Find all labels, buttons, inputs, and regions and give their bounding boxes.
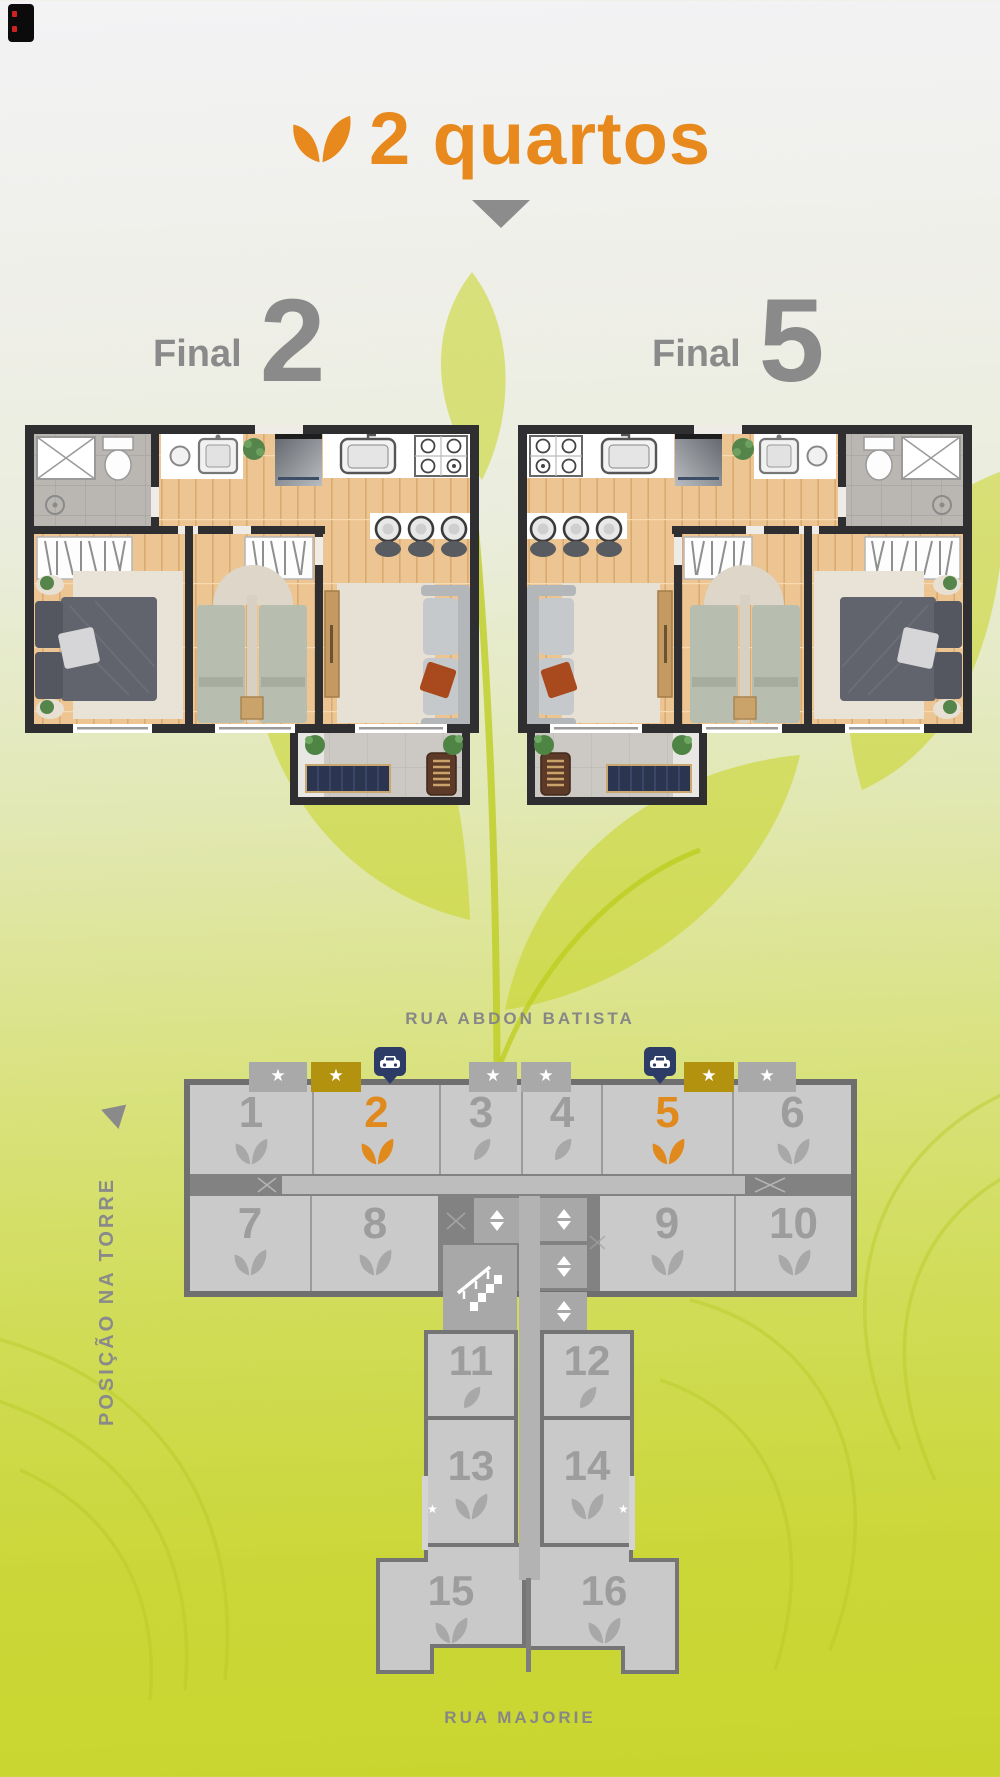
tower-side-label: POSIÇÃO NA TORRE (96, 1136, 130, 1426)
star-tab-6: ★ (738, 1062, 796, 1092)
star-tab-3: ★ (469, 1062, 517, 1092)
street-label-top: RUA ABDON BATISTA (20, 1009, 1000, 1029)
tower-unit-3: 3 (441, 1085, 521, 1174)
unit-number: 8 (363, 1202, 387, 1246)
star-tab-4: ★ (521, 1062, 571, 1092)
leaf-icon (551, 1137, 573, 1162)
tower-unit-5-highlighted: 5 (603, 1085, 732, 1174)
corridor-bar (282, 1176, 745, 1194)
star-tab-2-highlight: ★ (311, 1062, 361, 1092)
tower-unit-13: 13 (424, 1416, 518, 1549)
x-mark-icon (751, 1176, 789, 1194)
leaf-icon (433, 1616, 469, 1645)
unit-number: 12 (564, 1340, 611, 1382)
unit-number: 2 (364, 1091, 388, 1135)
leaf-icon (775, 1137, 811, 1166)
star-icon: ★ (427, 1502, 438, 1516)
page-title: 2 quartos (369, 96, 711, 181)
star-icon: ★ (485, 1066, 500, 1085)
tower-unit-7: 7 (190, 1196, 310, 1291)
leaf-icon (470, 1137, 492, 1162)
leaf-icon (460, 1385, 482, 1410)
final-5-label: Final 5 (652, 295, 824, 387)
star-icon: ★ (538, 1066, 553, 1085)
final-word: Final (652, 335, 741, 387)
unit-number: 16 (581, 1570, 628, 1612)
header: 2 quartos (0, 96, 1000, 181)
tower-unit-11: 11 (424, 1330, 518, 1420)
leaf-icon (649, 1248, 685, 1277)
leaf-icon (569, 1492, 605, 1521)
unit-number: 7 (238, 1202, 262, 1246)
tower-unit-9: 9 (600, 1196, 734, 1291)
leaf-icon (650, 1137, 686, 1166)
floorplan-final-2 (25, 425, 479, 805)
leaf-icon (289, 112, 353, 166)
star-icon: ★ (270, 1066, 285, 1085)
tower-unit-15: 15 (378, 1551, 524, 1663)
x-mark-box (438, 1196, 474, 1246)
final-2-label: Final 2 (153, 295, 325, 387)
final-digit: 5 (759, 295, 825, 387)
leaf-icon (453, 1492, 489, 1521)
door-mark (629, 1476, 635, 1550)
star-tab-1: ★ (249, 1062, 307, 1092)
star-tab-5-highlight: ★ (684, 1062, 734, 1092)
elevator-icon (474, 1198, 519, 1243)
unit-number: 4 (550, 1091, 574, 1135)
triangle-right-icon (101, 1095, 135, 1129)
unit-number: 3 (469, 1091, 493, 1135)
x-mark-icon (256, 1176, 278, 1194)
street-label-bottom: RUA MAJORIE (20, 1708, 1000, 1728)
leaf-icon (232, 1248, 268, 1277)
final-word: Final (153, 335, 242, 387)
tower-unit-10: 10 (736, 1196, 851, 1291)
tower-unit-1: 1 (190, 1085, 312, 1174)
leaf-icon (233, 1137, 269, 1166)
car-pin-icon (644, 1047, 676, 1076)
unit-number: 1 (239, 1091, 263, 1135)
tower-unit-12: 12 (540, 1330, 634, 1420)
tower-unit-4: 4 (523, 1085, 601, 1174)
tower-unit-8: 8 (312, 1196, 438, 1291)
star-icon: ★ (759, 1066, 774, 1085)
leaf-icon (576, 1385, 598, 1410)
corridor-vertical (519, 1196, 540, 1580)
unit-number: 6 (780, 1091, 804, 1135)
star-icon: ★ (618, 1502, 629, 1516)
recording-badge (8, 4, 34, 42)
leaf-icon (776, 1248, 812, 1277)
tower-unit-14: 14 (540, 1416, 634, 1549)
car-pin-icon (374, 1047, 406, 1076)
unit-number: 10 (769, 1202, 818, 1246)
elevator-icon (540, 1198, 587, 1241)
stairs-icon (443, 1245, 517, 1330)
leaf-icon (357, 1248, 393, 1277)
unit-number: 14 (564, 1445, 611, 1487)
tower-unit-2-highlighted: 2 (314, 1085, 439, 1174)
tower-unit-16: 16 (531, 1551, 677, 1663)
corridor (190, 1174, 851, 1196)
unit-number: 5 (655, 1091, 679, 1135)
triangle-down-icon (472, 200, 530, 228)
elevator-icon (540, 1292, 587, 1330)
leaf-icon (359, 1137, 395, 1166)
unit-number: 13 (448, 1445, 495, 1487)
star-icon: ★ (328, 1066, 343, 1085)
x-mark-icon (444, 1210, 468, 1232)
star-icon: ★ (701, 1066, 716, 1085)
unit-number: 9 (655, 1202, 679, 1246)
x-mark-icon (588, 1234, 607, 1251)
unit-number: 15 (428, 1570, 475, 1612)
unit-number: 11 (449, 1340, 493, 1382)
tower-unit-6: 6 (734, 1085, 851, 1174)
floorplan-final-5 (518, 425, 972, 805)
final-digit: 2 (260, 295, 326, 387)
elevator-icon (540, 1245, 587, 1288)
leaf-icon (586, 1616, 622, 1645)
